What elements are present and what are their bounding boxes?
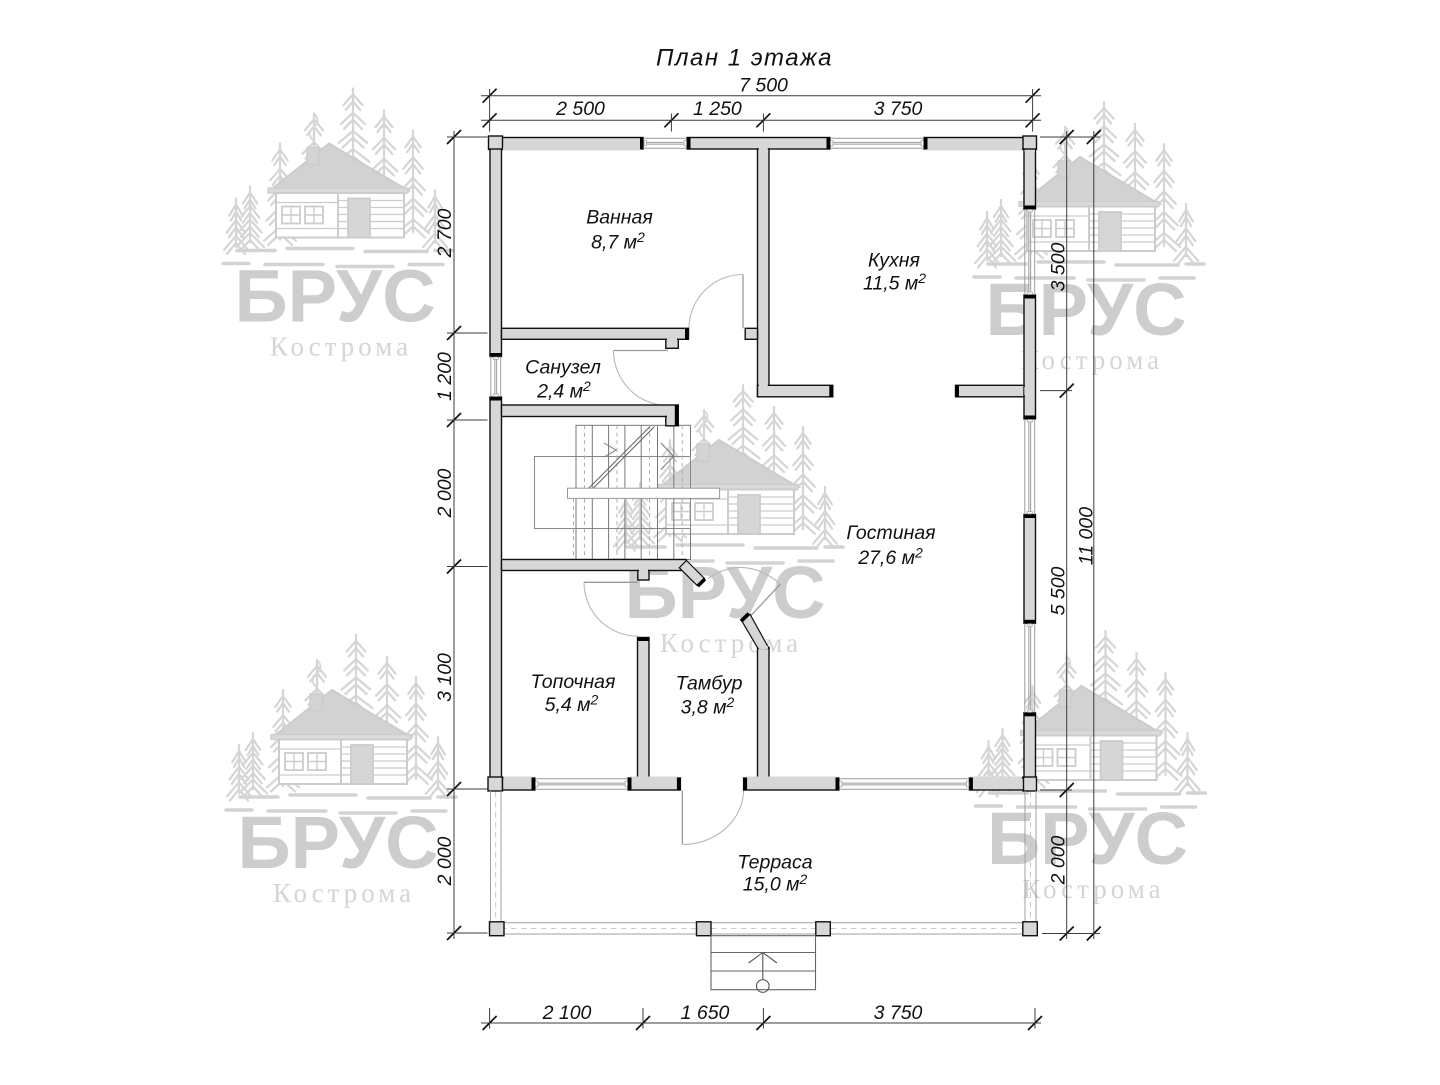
- svg-text:3 100: 3 100: [434, 653, 456, 702]
- svg-text:Кухня: Кухня: [868, 250, 921, 272]
- svg-text:2 000: 2 000: [434, 468, 456, 518]
- svg-text:1 250: 1 250: [693, 98, 742, 120]
- svg-text:3 750: 3 750: [874, 98, 923, 120]
- svg-text:2 700: 2 700: [434, 208, 456, 258]
- svg-text:8,7 м2: 8,7 м2: [591, 229, 645, 254]
- svg-text:Тамбур: Тамбур: [676, 673, 743, 695]
- svg-text:2 500: 2 500: [555, 98, 605, 120]
- svg-text:Санузел: Санузел: [525, 357, 601, 379]
- svg-text:3,8 м2: 3,8 м2: [681, 694, 735, 719]
- svg-text:Топочная: Топочная: [531, 671, 616, 693]
- svg-text:3 750: 3 750: [874, 1002, 923, 1024]
- svg-text:План 1 этажа: План 1 этажа: [656, 45, 833, 72]
- svg-text:2 000: 2 000: [434, 836, 456, 886]
- svg-text:2 000: 2 000: [1048, 835, 1070, 885]
- svg-text:2,4 м2: 2,4 м2: [536, 378, 591, 403]
- svg-text:3 500: 3 500: [1048, 242, 1070, 291]
- svg-text:1 200: 1 200: [434, 352, 456, 401]
- svg-text:11,5 м2: 11,5 м2: [863, 270, 926, 295]
- svg-text:5,4 м2: 5,4 м2: [545, 692, 599, 717]
- svg-text:Гостиная: Гостиная: [846, 522, 936, 544]
- svg-text:5 500: 5 500: [1048, 566, 1070, 615]
- svg-text:Ванная: Ванная: [586, 207, 653, 229]
- svg-text:11 000: 11 000: [1076, 507, 1098, 565]
- svg-text:7 500: 7 500: [739, 75, 788, 97]
- svg-text:15,0 м2: 15,0 м2: [743, 871, 808, 896]
- svg-text:27,6 м2: 27,6 м2: [857, 545, 923, 570]
- svg-text:1 650: 1 650: [681, 1002, 730, 1024]
- svg-text:2 100: 2 100: [542, 1002, 592, 1024]
